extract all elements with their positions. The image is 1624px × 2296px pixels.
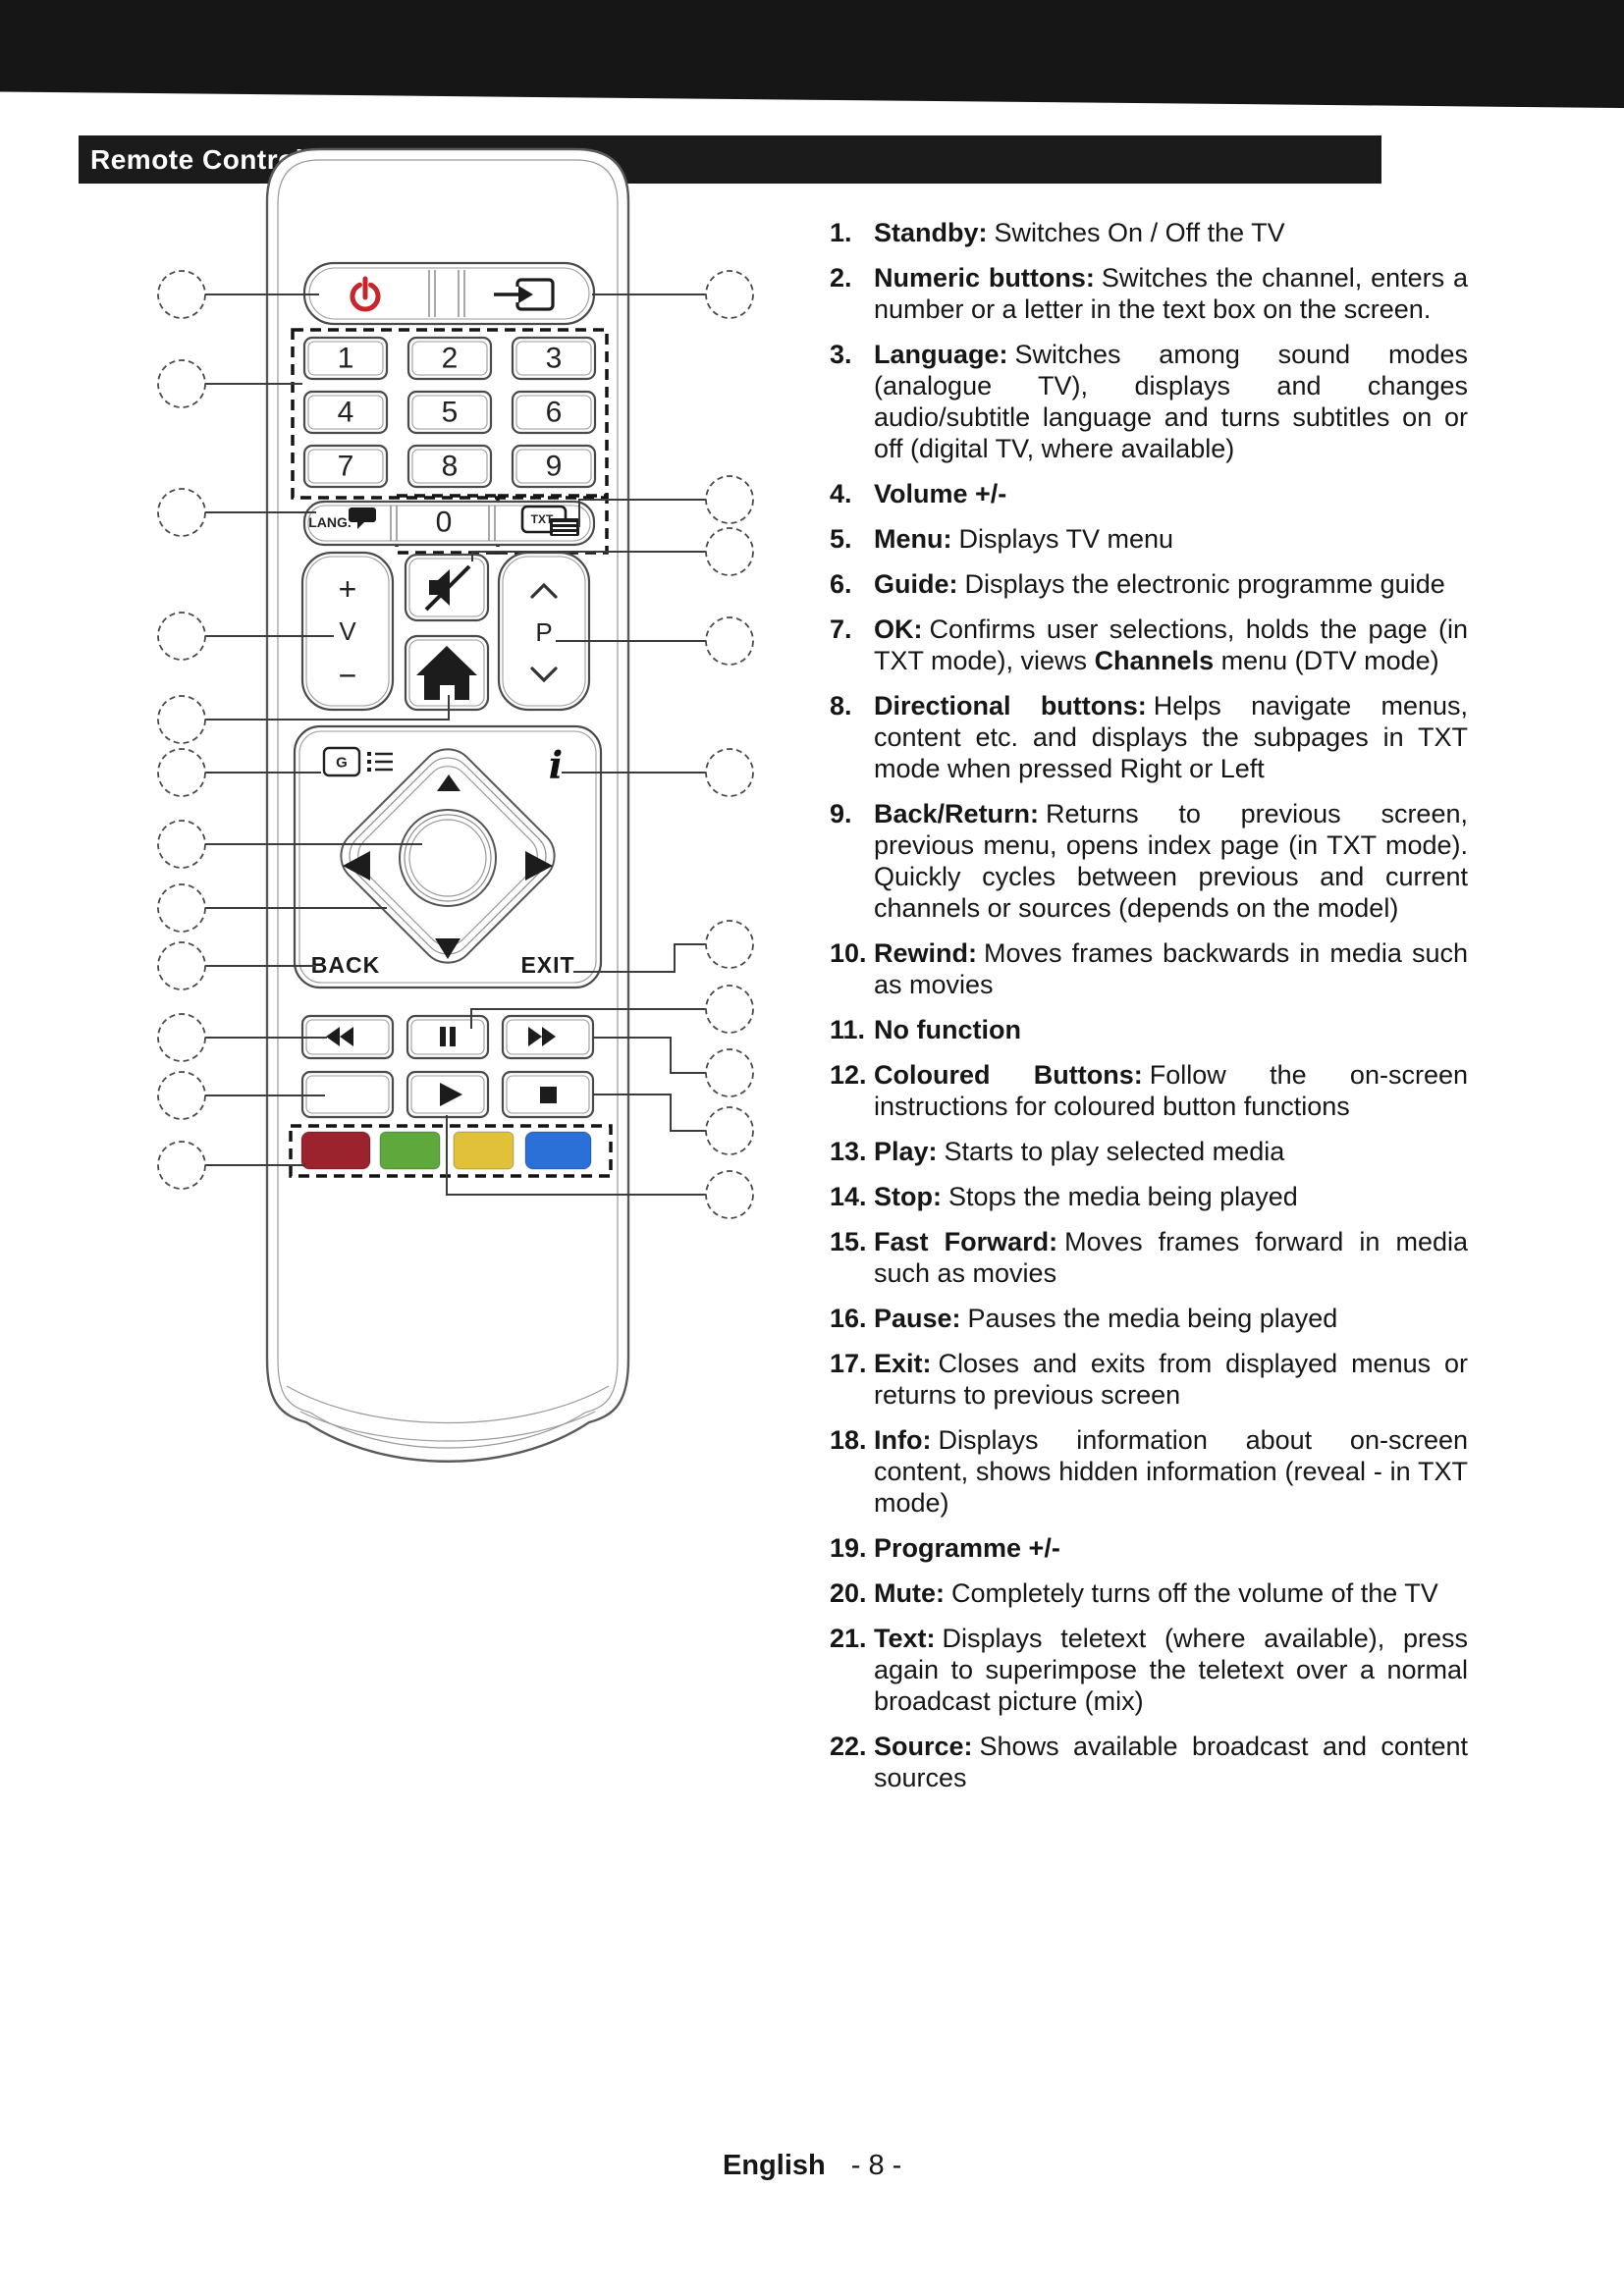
- item-label: Text:: [874, 1624, 936, 1653]
- item-label: Volume +/-: [874, 479, 1006, 508]
- item-text: Programme +/-: [874, 1532, 1468, 1564]
- svg-text:5: 5: [442, 397, 459, 429]
- svg-text:V: V: [339, 616, 356, 646]
- svg-text:+: +: [339, 571, 357, 607]
- item-text: Source:Shows available broadcast and con…: [874, 1731, 1468, 1793]
- item-label: Standby:: [874, 218, 988, 247]
- green-key: [380, 1132, 440, 1169]
- key-4: 4: [304, 392, 387, 433]
- list-item: 1.Standby:Switches On / Off the TV: [830, 217, 1468, 248]
- item-label: Directional buttons:: [874, 691, 1147, 721]
- item-desc: Displays information about on-screen con…: [874, 1425, 1468, 1518]
- item-text: Numeric buttons:Switches the channel, en…: [874, 262, 1468, 325]
- key-3: 3: [513, 338, 595, 379]
- callout-circle: [158, 942, 205, 989]
- item-text: Play:Starts to play selected media: [874, 1136, 1468, 1167]
- item-number: 10.: [830, 937, 874, 1000]
- item-label: Numeric buttons:: [874, 263, 1095, 293]
- item-text: Info:Displays information about on-scree…: [874, 1424, 1468, 1519]
- item-text: Exit:Closes and exits from displayed men…: [874, 1348, 1468, 1411]
- svg-text:−: −: [339, 658, 357, 693]
- item-label: Menu:: [874, 524, 951, 554]
- key-8: 8: [408, 446, 491, 487]
- item-desc: Confirms user selections, holds the page…: [874, 614, 1468, 675]
- svg-text:2: 2: [442, 343, 459, 375]
- callout-circle: [158, 489, 205, 536]
- item-label: Play:: [874, 1137, 938, 1166]
- svg-text:8: 8: [442, 451, 459, 483]
- svg-text:1: 1: [338, 343, 354, 375]
- callout-circle: [706, 617, 753, 665]
- callout-circle: [158, 1142, 205, 1189]
- remote-diagram: 1 2 3 4 5 6 7 8 9 LANG. 0 TXT: [0, 0, 805, 1531]
- callout-circle: [706, 1049, 753, 1096]
- list-item: 16.Pause:Pauses the media being played: [830, 1303, 1468, 1334]
- item-number: 22.: [830, 1731, 874, 1793]
- callout-circle: [706, 749, 753, 796]
- svg-text:0: 0: [436, 507, 453, 539]
- list-item: 12.Coloured Buttons:Follow the on-screen…: [830, 1059, 1468, 1122]
- callout-circle: [706, 986, 753, 1033]
- item-number: 8.: [830, 690, 874, 784]
- svg-text:LANG.: LANG.: [308, 514, 352, 530]
- item-text: Mute:Completely turns off the volume of …: [874, 1577, 1468, 1609]
- item-number: 6.: [830, 568, 874, 600]
- blue-key: [525, 1132, 591, 1169]
- item-number: 19.: [830, 1532, 874, 1564]
- pause-key: [407, 1016, 488, 1058]
- svg-text:4: 4: [338, 397, 354, 429]
- list-item: 21.Text:Displays teletext (where availab…: [830, 1623, 1468, 1717]
- item-number: 17.: [830, 1348, 874, 1411]
- item-text: Text:Displays teletext (where available)…: [874, 1623, 1468, 1717]
- item-label: Source:: [874, 1732, 973, 1761]
- item-number: 18.: [830, 1424, 874, 1519]
- svg-text:6: 6: [546, 397, 563, 429]
- item-desc: Displays TV menu: [958, 524, 1173, 554]
- item-number: 4.: [830, 478, 874, 509]
- callout-circle: [158, 271, 205, 318]
- callout-circle: [158, 696, 205, 743]
- item-text: Fast Forward:Moves frames forward in med…: [874, 1226, 1468, 1289]
- list-item: 11.No function: [830, 1014, 1468, 1045]
- ok-button: [400, 810, 496, 906]
- item-label: Exit:: [874, 1349, 932, 1378]
- list-item: 22.Source:Shows available broadcast and …: [830, 1731, 1468, 1793]
- key-1: 1: [304, 338, 387, 379]
- item-desc: Stops the media being played: [948, 1182, 1298, 1211]
- item-label: Rewind:: [874, 938, 977, 968]
- programme-rocker: P: [499, 553, 589, 710]
- list-item: 14.Stop:Stops the media being played: [830, 1181, 1468, 1212]
- list-item: 9.Back/Return:Returns to previous screen…: [830, 798, 1468, 924]
- item-number: 20.: [830, 1577, 874, 1609]
- item-number: 1.: [830, 217, 874, 248]
- list-item: 8.Directional buttons:Helps navigate men…: [830, 690, 1468, 784]
- item-desc: Displays the electronic programme guide: [965, 569, 1445, 599]
- list-item: 7.OK:Confirms user selections, holds the…: [830, 614, 1468, 676]
- item-text: Back/Return:Returns to previous screen, …: [874, 798, 1468, 924]
- svg-text:G: G: [336, 755, 348, 772]
- item-desc: Completely turns off the volume of the T…: [951, 1578, 1438, 1608]
- list-item: 17.Exit:Closes and exits from displayed …: [830, 1348, 1468, 1411]
- list-item: 3.Language:Switches among sound modes (a…: [830, 339, 1468, 464]
- list-item: 4.Volume +/-: [830, 478, 1468, 509]
- list-item: 2.Numeric buttons:Switches the channel, …: [830, 262, 1468, 325]
- list-item: 6.Guide:Displays the electronic programm…: [830, 568, 1468, 600]
- svg-text:7: 7: [338, 451, 354, 483]
- svg-text:3: 3: [546, 343, 563, 375]
- item-text: OK:Confirms user selections, holds the p…: [874, 614, 1468, 676]
- play-key: [407, 1072, 488, 1117]
- callout-circle: [158, 884, 205, 932]
- footer-language: English: [723, 2150, 826, 2182]
- item-number: 12.: [830, 1059, 874, 1122]
- item-desc: Starts to play selected media: [945, 1137, 1285, 1166]
- item-number: 21.: [830, 1623, 874, 1717]
- item-number: 9.: [830, 798, 874, 924]
- callout-circle: [706, 476, 753, 523]
- item-text: Rewind:Moves frames backwards in media s…: [874, 937, 1468, 1000]
- item-text: Menu:Displays TV menu: [874, 523, 1468, 555]
- yellow-key: [454, 1132, 514, 1169]
- item-desc: Switches On / Off the TV: [995, 218, 1285, 247]
- list-item: 5.Menu:Displays TV menu: [830, 523, 1468, 555]
- svg-text:9: 9: [546, 451, 563, 483]
- key-9: 9: [513, 446, 595, 487]
- item-label: Guide:: [874, 569, 958, 599]
- item-label: Language:: [874, 340, 1008, 369]
- item-label: Pause:: [874, 1304, 961, 1333]
- back-label: BACK: [311, 952, 380, 978]
- item-text: Directional buttons:Helps navigate menus…: [874, 690, 1468, 784]
- key-5: 5: [408, 392, 491, 433]
- item-number: 15.: [830, 1226, 874, 1289]
- list-item: 20.Mute:Completely turns off the volume …: [830, 1577, 1468, 1609]
- home-key: [406, 636, 488, 710]
- item-number: 3.: [830, 339, 874, 464]
- item-text: Coloured Buttons:Follow the on-screen in…: [874, 1059, 1468, 1122]
- key-0: 0: [436, 507, 453, 539]
- red-key: [301, 1132, 370, 1169]
- list-item: 15.Fast Forward:Moves frames forward in …: [830, 1226, 1468, 1289]
- item-text: Language:Switches among sound modes (ana…: [874, 339, 1468, 464]
- list-item: 10.Rewind:Moves frames backwards in medi…: [830, 937, 1468, 1000]
- item-label: No function: [874, 1015, 1021, 1044]
- item-text: Volume +/-: [874, 478, 1468, 509]
- callout-circle: [158, 749, 205, 796]
- footer-page-number: - 8 -: [851, 2150, 902, 2182]
- mute-key: [406, 555, 488, 620]
- item-text: Pause:Pauses the media being played: [874, 1303, 1468, 1334]
- description-list: 1.Standby:Switches On / Off the TV2.Nume…: [830, 217, 1468, 1807]
- fast-forward-key: [503, 1016, 593, 1058]
- item-label: Mute:: [874, 1578, 945, 1608]
- item-number: 11.: [830, 1014, 874, 1045]
- item-desc: Pauses the media being played: [968, 1304, 1338, 1333]
- callout-circle: [706, 1171, 753, 1218]
- page-footer: English - 8 -: [723, 2150, 901, 2182]
- item-label: Info:: [874, 1425, 931, 1455]
- item-text: Standby:Switches On / Off the TV: [874, 217, 1468, 248]
- item-text: Guide:Displays the electronic programme …: [874, 568, 1468, 600]
- item-desc: Closes and exits from displayed menus or…: [874, 1349, 1468, 1410]
- callout-circle: [158, 1072, 205, 1119]
- volume-rocker: + V −: [302, 553, 393, 710]
- callout-circle: [158, 613, 205, 660]
- item-label: Fast Forward:: [874, 1227, 1057, 1256]
- item-label: OK:: [874, 614, 923, 644]
- stop-key: [503, 1072, 593, 1117]
- list-item: 13.Play:Starts to play selected media: [830, 1136, 1468, 1167]
- item-text: Stop:Stops the media being played: [874, 1181, 1468, 1212]
- key-6: 6: [513, 392, 595, 433]
- callout-circle: [158, 360, 205, 407]
- callout-circle: [158, 821, 205, 868]
- item-number: 14.: [830, 1181, 874, 1212]
- callout-circle: [706, 921, 753, 968]
- item-desc: Displays teletext (where available), pre…: [874, 1624, 1468, 1716]
- item-number: 7.: [830, 614, 874, 676]
- item-number: 2.: [830, 262, 874, 325]
- item-label: Coloured Buttons:: [874, 1060, 1143, 1090]
- svg-text:P: P: [535, 617, 552, 647]
- callout-circle: [706, 528, 753, 575]
- callout-circle: [706, 271, 753, 318]
- list-item: 19.Programme +/-: [830, 1532, 1468, 1564]
- stop-icon: [540, 1087, 557, 1103]
- info-icon: i: [549, 743, 563, 787]
- manual-page: Remote Control: [0, 0, 1624, 2296]
- list-item: 18.Info:Displays information about on-sc…: [830, 1424, 1468, 1519]
- callout-circle: [158, 1014, 205, 1061]
- item-number: 5.: [830, 523, 874, 555]
- item-label: Back/Return:: [874, 799, 1039, 828]
- item-label: Stop:: [874, 1182, 942, 1211]
- item-number: 16.: [830, 1303, 874, 1334]
- dpad-panel: G i BACK EXIT: [295, 726, 601, 988]
- power-source-key-row: [304, 263, 594, 324]
- item-label: Programme +/-: [874, 1533, 1060, 1563]
- item-number: 13.: [830, 1136, 874, 1167]
- exit-label: EXIT: [520, 952, 574, 978]
- item-text: No function: [874, 1014, 1468, 1045]
- key-7: 7: [304, 446, 387, 487]
- callout-circle: [706, 1107, 753, 1154]
- key-2: 2: [408, 338, 491, 379]
